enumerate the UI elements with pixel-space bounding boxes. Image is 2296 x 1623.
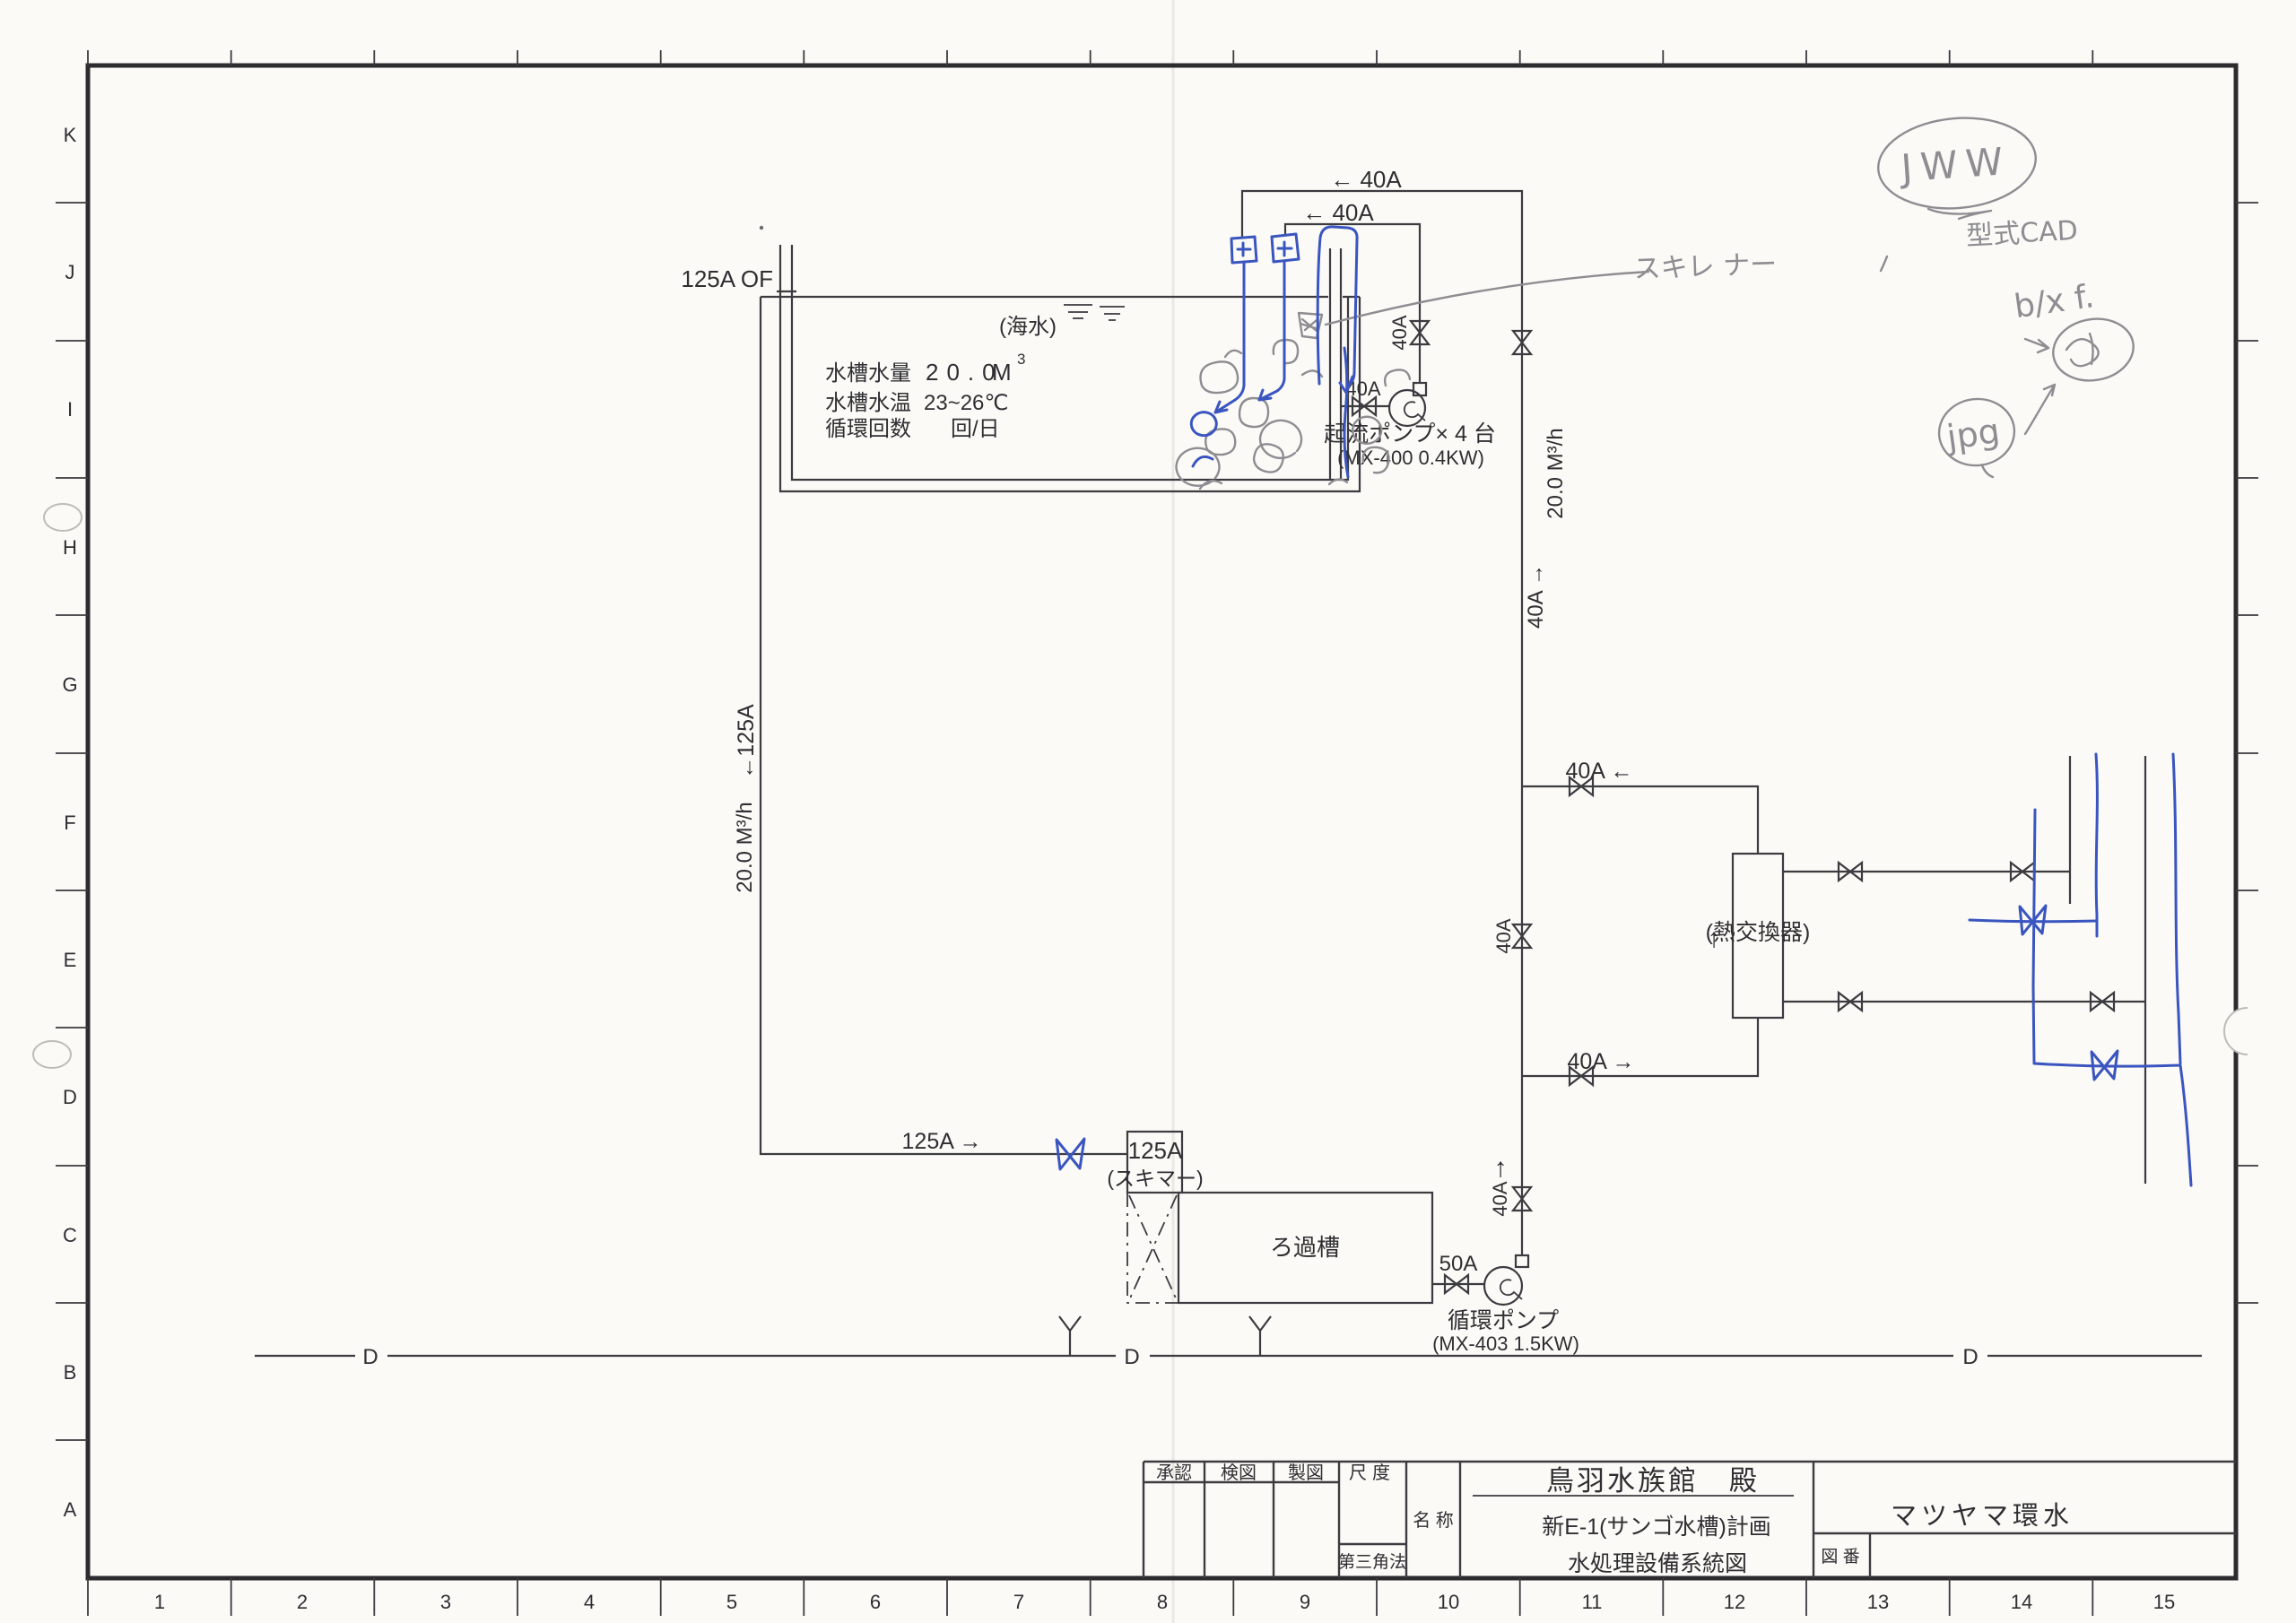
heat-exchanger-label: (熱交換器) <box>1706 920 1811 945</box>
zone-letter: H <box>63 536 77 559</box>
flow-pump-model: (MX-400 0.4KW) <box>1337 447 1484 469</box>
datum-label: D <box>1124 1345 1139 1369</box>
zone-number: 6 <box>870 1591 881 1613</box>
circ-pump-model: (MX-403 1.5KW) <box>1432 1332 1579 1355</box>
handwritten-cad-note: 型式CAD <box>1965 215 2078 252</box>
hand-drawn-pipe <box>2033 810 2191 1185</box>
zone-number: 5 <box>726 1591 737 1613</box>
handwritten-note2: b/x f. <box>2012 278 2096 325</box>
zone-number: 3 <box>440 1591 451 1613</box>
pencil-annotations: スキレ ナー JWW 型式CAD b/x f. jpg <box>1177 112 2139 489</box>
flow-pump-name: 起流ポンプ× 4 台 <box>1324 421 1496 447</box>
zone-number: 4 <box>584 1591 595 1613</box>
zone-number: 13 <box>1867 1591 1889 1613</box>
drawing-canvas: K J I H G F E D C B A 1 2 3 4 5 6 7 8 9 … <box>0 0 2296 1623</box>
pipe-network <box>761 191 2145 1284</box>
zone-number: 12 <box>1724 1591 1745 1613</box>
zone-number: 8 <box>1157 1591 1168 1613</box>
zone-letter: J <box>65 261 75 283</box>
pump-impeller-icon <box>1405 402 1425 421</box>
skimmer: 125A (スキマー) <box>1107 1132 1203 1303</box>
drain-pipe <box>761 297 1127 1154</box>
outer-loop-label: ← 40A <box>1330 166 1402 193</box>
riser-mid-valve-label: 40A <box>1492 918 1515 953</box>
leader-line <box>1326 272 1648 325</box>
circ-pump-name: 循環ポンプ <box>1448 1308 1559 1333</box>
drain-run-label: 125A → <box>902 1129 982 1154</box>
zone-letter: D <box>63 1086 77 1108</box>
zone-number: 1 <box>154 1591 165 1613</box>
water-surface-icon <box>1064 305 1125 320</box>
hand-drawn-pipe <box>2096 754 2097 936</box>
draft-label: 製図 <box>1288 1462 1324 1483</box>
heat-exchanger-arrow: ↑ <box>1708 924 1721 953</box>
punch-hole <box>33 1041 71 1068</box>
dwg-no-label: 図 番 <box>1821 1547 1859 1567</box>
inner-loop-pipe <box>1285 224 1420 383</box>
tank-temp-label: 水槽水温 <box>825 391 911 415</box>
loop-valve-size-label: 40A <box>1388 315 1411 350</box>
zone-letter: G <box>62 673 77 696</box>
tank-volume-unit: M <box>992 359 1012 386</box>
approve-label: 承認 <box>1156 1462 1192 1483</box>
hand-drawn-loop <box>1318 227 1357 384</box>
punch-hole <box>44 504 82 531</box>
hand-drawn-pipe <box>2173 754 2180 1063</box>
hand-drawn-box <box>1231 237 1257 263</box>
tank-volume-exponent: 3 <box>1017 351 1025 368</box>
filter-tank: ろ過槽 50A <box>1178 1193 1477 1303</box>
coral-tank: 125A OF (海水) 水槽水量 20.0 M 3 水槽水温 23~26℃ 循… <box>681 245 1360 491</box>
arrow-icon <box>2025 339 2048 352</box>
blue-pen-annotations <box>1057 227 2191 1185</box>
zone-number: 2 <box>297 1591 308 1613</box>
floor-drain-icon <box>1059 1316 1271 1356</box>
projection-label: 第三角法 <box>1338 1552 1406 1572</box>
sheet-name: 水処理設備系統図 <box>1568 1551 1747 1576</box>
filter-tank-label: ろ過槽 <box>1270 1234 1340 1261</box>
hx-feed-label: 40A ← <box>1565 759 1632 784</box>
zone-number: 7 <box>1013 1591 1024 1613</box>
name-label: 名 称 <box>1413 1510 1454 1531</box>
tank-cycles-value: 回/日 <box>951 417 1000 441</box>
zone-letter: E <box>64 949 77 971</box>
riser-size-label: 40A → <box>1524 564 1548 629</box>
handwritten-note3: jpg <box>1944 411 2002 457</box>
hx-feed-branch <box>1522 786 1758 854</box>
datum-label: D <box>362 1345 378 1369</box>
hx-return-label: 40A → <box>1567 1049 1634 1074</box>
client-name: 鳥羽水族館 殿 <box>1546 1465 1760 1497</box>
filter-outlet-size: 50A <box>1439 1252 1478 1276</box>
zone-number: 9 <box>1300 1591 1310 1613</box>
datum-line: D D D <box>255 1316 2202 1369</box>
riser-lower-valve-label: 40A <box>1489 1181 1511 1216</box>
tank-cycles-label: 循環回数 <box>825 417 911 441</box>
zone-number: 14 <box>2011 1591 2032 1613</box>
riser-labels: 20.0 M³/h 40A → 40A ← 40A 40A → ↑ 40A <box>1489 428 1635 1216</box>
handwritten-skimmer-note: スキレ ナー <box>1633 248 1778 285</box>
scan-speck <box>760 226 763 230</box>
zone-number: 15 <box>2153 1591 2175 1613</box>
zone-letter: A <box>64 1498 77 1521</box>
source-risers <box>2070 756 2145 1184</box>
zone-letter: K <box>64 124 77 146</box>
zone-letter: I <box>67 398 73 421</box>
hx-secondary-pipes <box>1783 872 2145 1002</box>
inner-loop-label: ← 40A <box>1302 199 1374 226</box>
project-name: 新E-1(サンゴ水槽)計画 <box>1542 1515 1771 1540</box>
overflow-label: 125A OF <box>681 265 773 292</box>
title-block: 承認 検図 製図 尺度 第三角法 名 称 鳥羽水族館 殿 新E-1(サンゴ水槽)… <box>1144 1462 2236 1578</box>
handwritten-cad-name: JWW <box>1897 139 2013 191</box>
heat-exchanger: (熱交換器) ↑ <box>1706 854 1811 1018</box>
arrow-icon <box>2025 385 2055 434</box>
drawing-frame: K J I H G F E D C B A 1 2 3 4 5 6 7 8 9 … <box>33 50 2271 1616</box>
check-label: 検図 <box>1221 1462 1257 1483</box>
skimmer-name-label: (スキマー) <box>1107 1167 1203 1190</box>
hand-drawn-box <box>1272 234 1299 262</box>
zone-number: 11 <box>1582 1591 1603 1613</box>
company-name: マツヤマ環水 <box>1891 1501 2074 1531</box>
datum-label: D <box>1962 1345 1978 1369</box>
drain-labels: ←125A 20.0 M³/h 125A → <box>733 704 981 1154</box>
scanned-piping-diagram: K J I H G F E D C B A 1 2 3 4 5 6 7 8 9 … <box>0 0 2296 1623</box>
tank-temp-value: 23~26℃ <box>924 391 1008 415</box>
zone-letter: F <box>64 811 75 834</box>
riser-flow-label: 20.0 M³/h <box>1544 428 1568 518</box>
drain-flow-label: 20.0 M³/h <box>733 802 757 892</box>
riser-up-arrow: ↑ <box>1494 1153 1508 1183</box>
water-type-label: (海水) <box>999 315 1057 339</box>
zone-number: 10 <box>1438 1591 1459 1613</box>
hx-return-branch <box>1522 1018 1758 1076</box>
skimmer-x-pattern <box>1129 1195 1177 1300</box>
zone-letter: C <box>63 1224 77 1246</box>
hand-drawn-arrow <box>1259 261 1284 400</box>
tank-volume-label: 水槽水量 <box>825 361 911 386</box>
zone-letter: B <box>64 1361 77 1384</box>
scale-label: 尺度 <box>1349 1462 1396 1483</box>
drain-size-label: ←125A <box>734 704 759 779</box>
skimmer-size-label: 125A <box>1128 1137 1183 1164</box>
pump-impeller-icon <box>1500 1280 1522 1299</box>
flow-pump: 40A 40A 起流ポンプ× 4 台 (MX-400 0.4KW) ← 40A … <box>1302 166 1496 469</box>
